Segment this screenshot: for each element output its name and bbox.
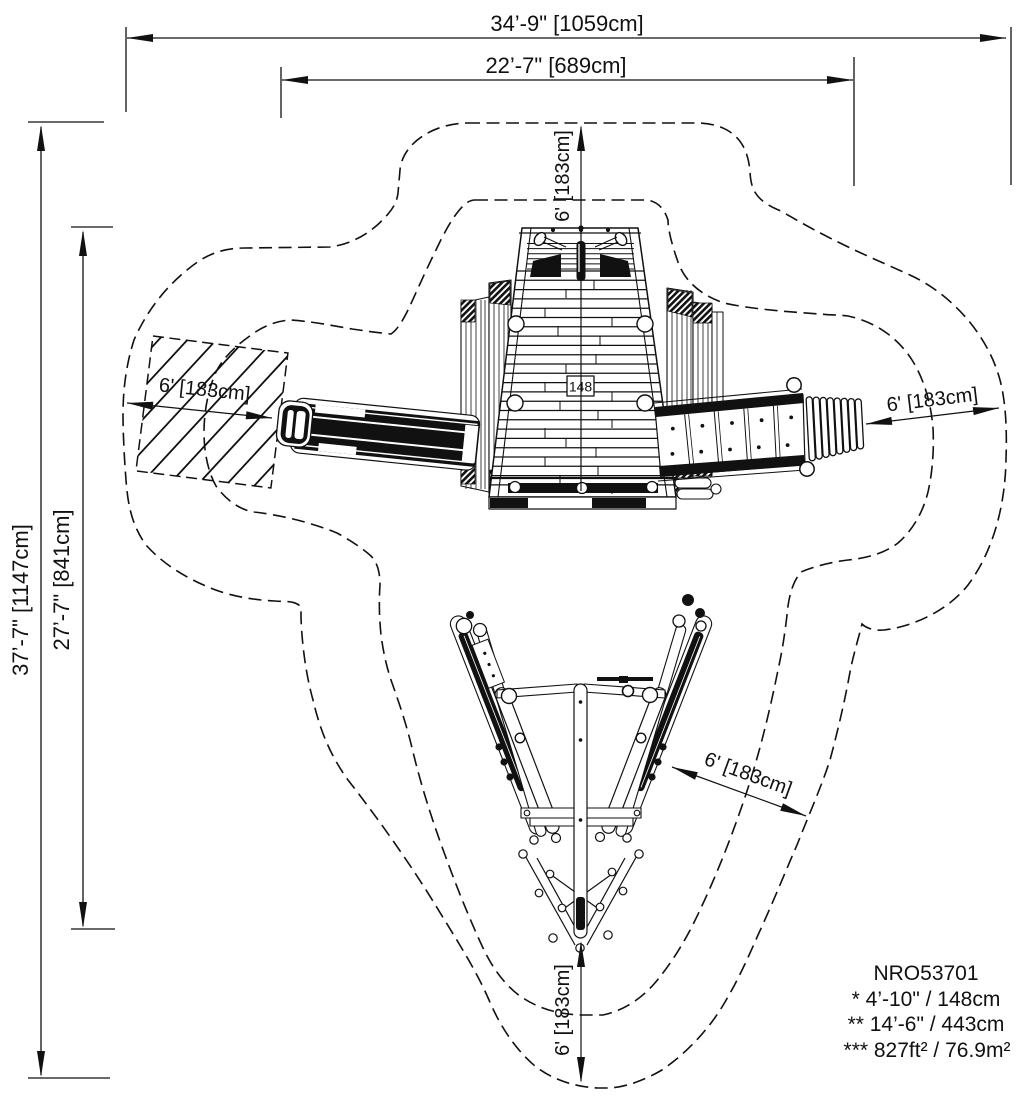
svg-text:*** 827ft² / 76.9m²: *** 827ft² / 76.9m² — [844, 1039, 1011, 1062]
svg-text:22’-7" [689cm]: 22’-7" [689cm] — [485, 53, 626, 78]
svg-text:37’-7" [1147cm]: 37’-7" [1147cm] — [8, 524, 33, 676]
svg-text:34’-9" [1059cm]: 34’-9" [1059cm] — [490, 11, 643, 36]
svg-text:NRO53701: NRO53701 — [873, 962, 978, 985]
svg-text:27’-7" [841cm]: 27’-7" [841cm] — [49, 509, 74, 650]
svg-text:* 4’-10" / 148cm: * 4’-10" / 148cm — [852, 988, 1001, 1011]
svg-text:6' [183cm]: 6' [183cm] — [552, 130, 574, 222]
svg-text:6' [183cm]: 6' [183cm] — [552, 964, 574, 1056]
svg-text:** 14’-6" / 443cm: ** 14’-6" / 443cm — [848, 1013, 1005, 1036]
